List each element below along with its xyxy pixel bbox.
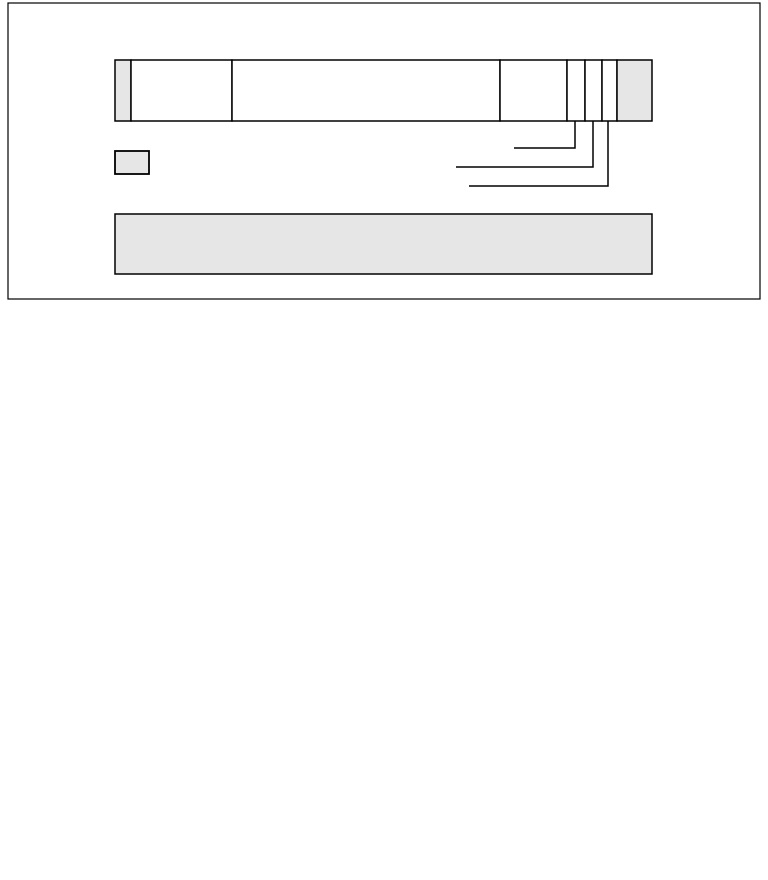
document-page xyxy=(0,0,768,880)
frame-segment-bit-field-1 xyxy=(567,60,585,121)
frame-segment-flag-right xyxy=(617,60,652,121)
frame-segment-flag-left xyxy=(115,60,131,121)
frame-segment-bit-field-2 xyxy=(585,60,602,121)
frame-segment-field-1 xyxy=(131,60,232,121)
legend-swatch-box xyxy=(115,151,149,174)
frame-format-figure xyxy=(0,0,768,880)
frame-segment-field-3 xyxy=(500,60,567,121)
frame-segment-field-2 xyxy=(232,60,500,121)
frame-segment-bit-field-3 xyxy=(602,60,617,121)
note-box xyxy=(115,214,652,274)
